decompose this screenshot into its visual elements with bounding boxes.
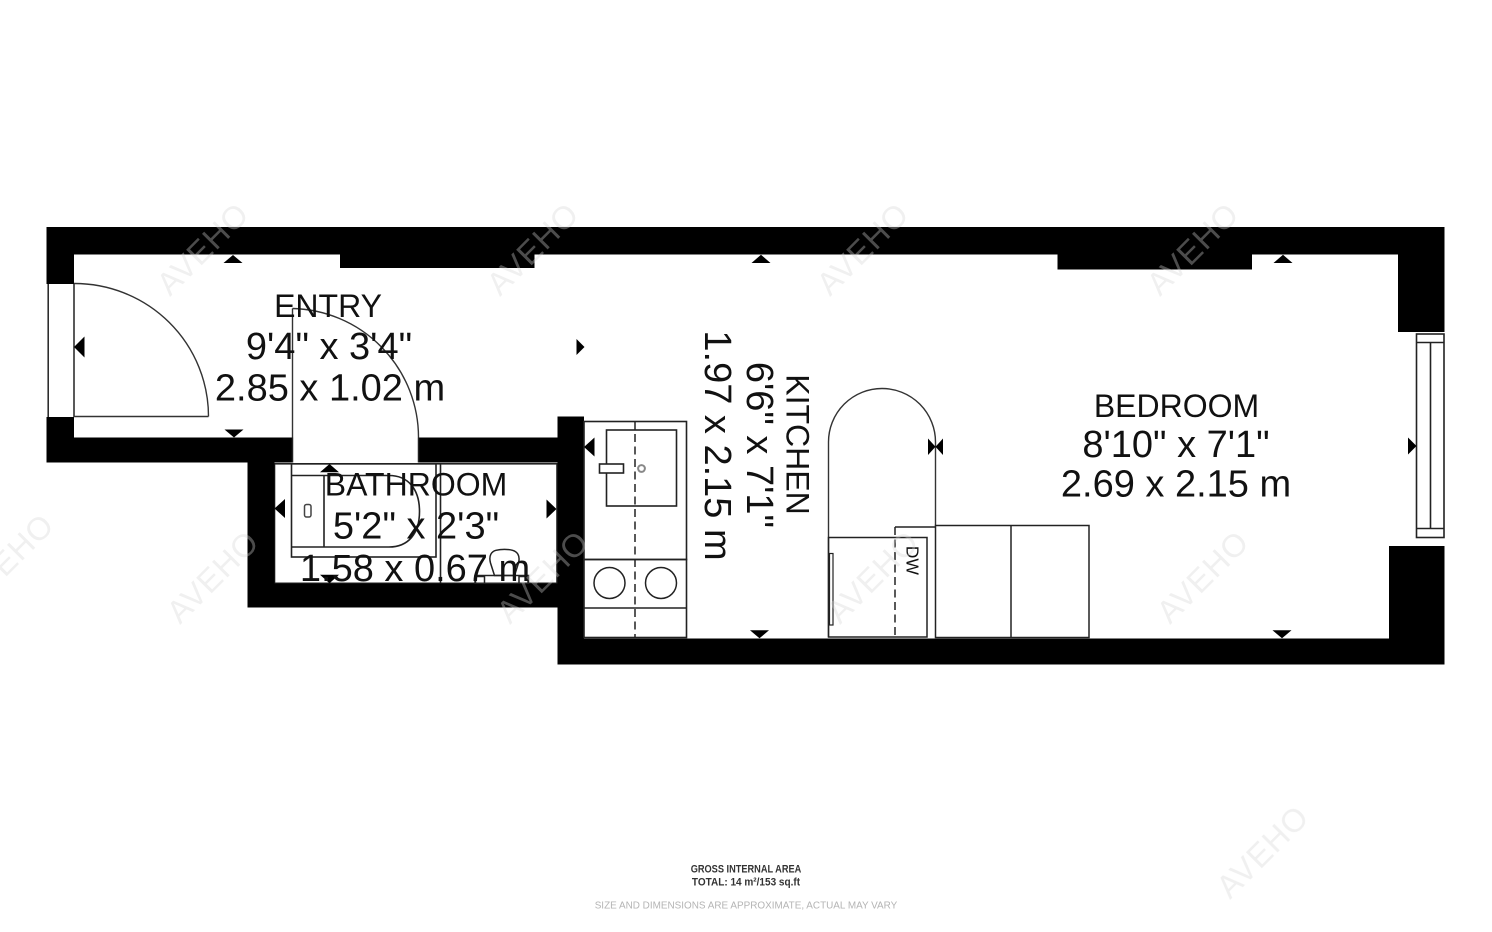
svg-text:1.97 x 2.15 m: 1.97 x 2.15 m [696, 330, 738, 560]
svg-text:5'2" x 2'3": 5'2" x 2'3" [333, 506, 499, 548]
svg-text:TOTAL: 14 m²/153 sq.ft: TOTAL: 14 m²/153 sq.ft [692, 877, 800, 889]
svg-text:2.69 x 2.15 m: 2.69 x 2.15 m [1061, 464, 1291, 506]
svg-text:8'10" x 7'1": 8'10" x 7'1" [1082, 424, 1269, 466]
svg-text:1.58 x 0.67 m: 1.58 x 0.67 m [300, 548, 530, 590]
svg-text:9'4" x 3'4": 9'4" x 3'4" [246, 326, 412, 368]
svg-text:2.85 x 1.02 m: 2.85 x 1.02 m [215, 368, 445, 410]
svg-text:SIZE AND DIMENSIONS ARE APPROX: SIZE AND DIMENSIONS ARE APPROXIMATE, ACT… [595, 900, 898, 912]
svg-text:BATHROOM: BATHROOM [325, 467, 508, 503]
svg-text:GROSS INTERNAL AREA: GROSS INTERNAL AREA [691, 864, 802, 876]
svg-text:ENTRY: ENTRY [274, 288, 382, 324]
svg-text:6'6" x 7'1": 6'6" x 7'1" [738, 362, 780, 528]
svg-text:KITCHEN: KITCHEN [780, 374, 816, 514]
svg-text:BEDROOM: BEDROOM [1094, 388, 1259, 424]
